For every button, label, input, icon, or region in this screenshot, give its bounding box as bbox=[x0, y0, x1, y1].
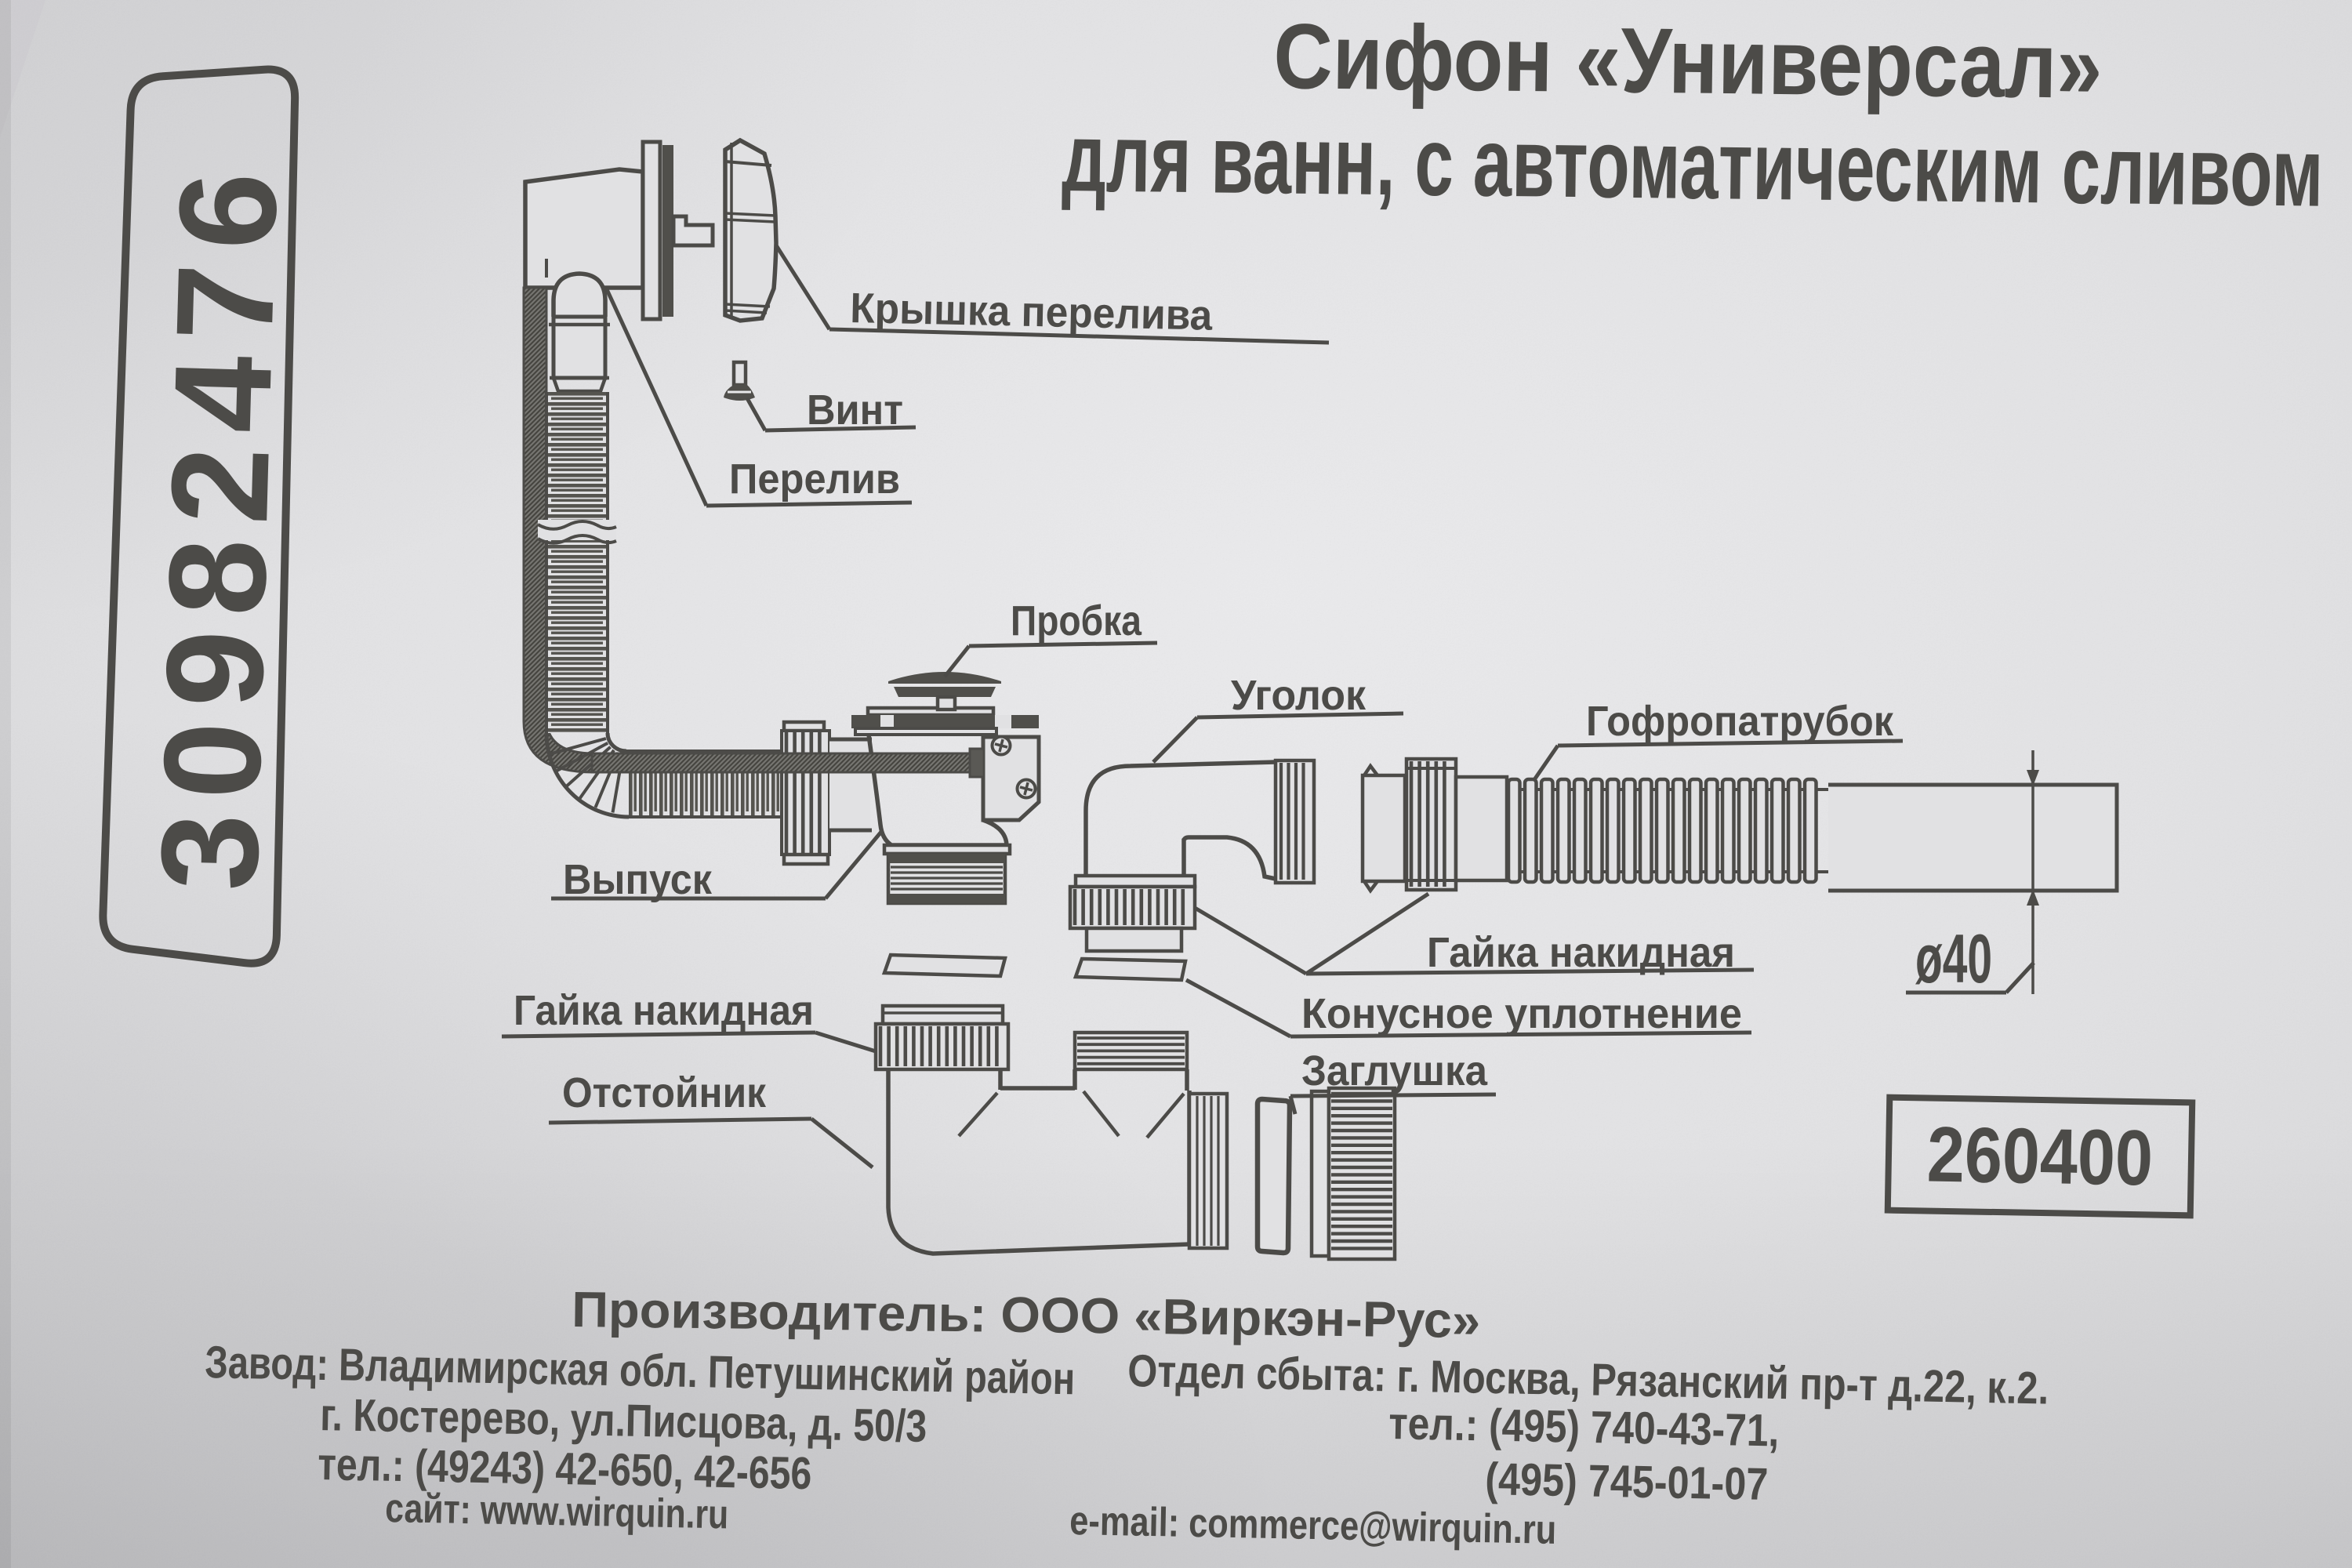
svg-text:Гофропатрубок: Гофропатрубок bbox=[1586, 698, 1894, 745]
svg-text:Перелив: Перелив bbox=[729, 456, 900, 503]
svg-text:Заглушка: Заглушка bbox=[1301, 1047, 1488, 1094]
svg-text:Выпуск: Выпуск bbox=[563, 856, 713, 903]
svg-text:Уголок: Уголок bbox=[1231, 672, 1367, 719]
svg-text:Сифон «Универсал»: Сифон «Универсал» bbox=[1273, 5, 2103, 118]
svg-text:сайт: www.wirquin.ru: сайт: www.wirquin.ru bbox=[385, 1486, 729, 1537]
svg-text:Гайка накидная: Гайка накидная bbox=[514, 987, 814, 1034]
svg-text:Винт: Винт bbox=[807, 387, 903, 434]
svg-text:Пробка: Пробка bbox=[1011, 597, 1142, 644]
svg-text:Отстойник: Отстойник bbox=[562, 1069, 767, 1116]
svg-text:(495) 745-01-07: (495) 745-01-07 bbox=[1485, 1454, 1769, 1510]
svg-text:для ванн, с автоматическим сли: для ванн, с автоматическим сливом bbox=[1062, 103, 2325, 227]
svg-text:Конусное уплотнение: Конусное уплотнение bbox=[1301, 990, 1742, 1037]
svg-text:e-mail: commerce@wirquin.ru: e-mail: commerce@wirquin.ru bbox=[1069, 1498, 1557, 1553]
svg-text:ø40: ø40 bbox=[1915, 920, 1992, 997]
svg-text:Крышка перелива: Крышка перелива bbox=[850, 285, 1214, 339]
svg-text:тел.: (495) 740-43-71,: тел.: (495) 740-43-71, bbox=[1388, 1398, 1780, 1457]
svg-text:Гайка накидная: Гайка накидная bbox=[1427, 929, 1735, 976]
svg-text:260400: 260400 bbox=[1926, 1110, 2154, 1202]
svg-text:Производитель: ООО «Виркэн-Рус: Производитель: ООО «Виркэн-Рус» bbox=[572, 1281, 1481, 1348]
svg-text:30982476: 30982476 bbox=[132, 155, 307, 892]
